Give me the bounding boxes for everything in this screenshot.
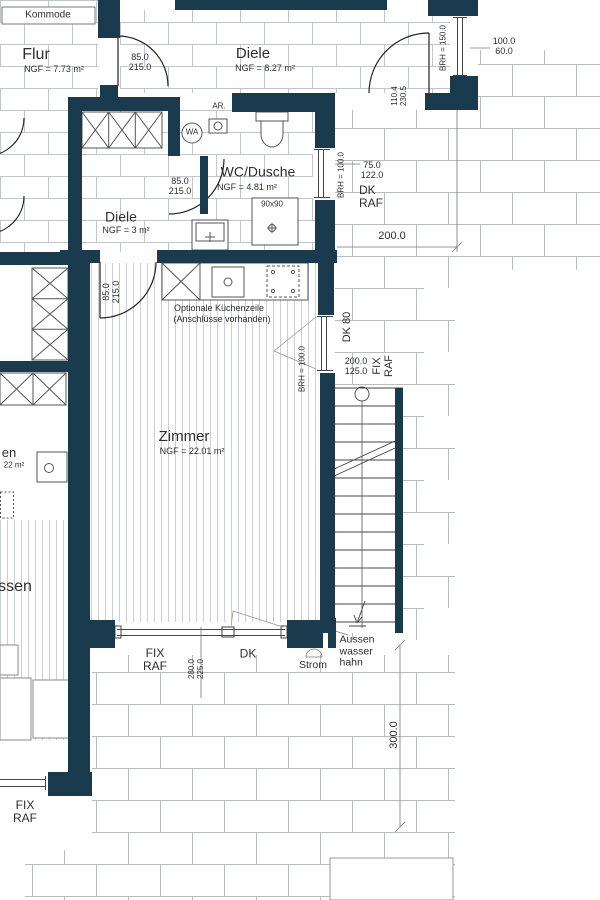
neighbor-room-fragment-ssen: ssen [0, 578, 32, 596]
dim-window-zimmer-east: 200.0125.0 [345, 357, 368, 377]
kitchen-counter [162, 263, 308, 300]
room-name-diele-top: Diele [236, 46, 270, 63]
window-wc-type: DKRAF [359, 184, 383, 210]
wardrobe-diele [82, 112, 162, 148]
dim-entrance-door: 110.4230.5 [391, 86, 409, 106]
drain-outlet-icon [209, 119, 227, 133]
stair-door-label: DK 80 [341, 312, 353, 343]
drain-outlet-label: AR. [212, 103, 225, 112]
dim-door-diele-small: 85.0215.0 [169, 177, 192, 197]
dim-brh-wc: BRH = 100.0 [338, 152, 347, 198]
stove-neighbor [37, 452, 67, 482]
floor-plan: Kommode Flur NGF = 7.73 m² Diele NGF = 8… [0, 0, 600, 900]
neighbor-room-fragment-en: en [2, 446, 16, 460]
room-area-flur: NGF = 7.73 m² [24, 65, 84, 75]
dim-terrace-width: 200.0 [378, 230, 406, 242]
floor-plan-drawing [0, 0, 600, 900]
room-name-zimmer: Zimmer [159, 429, 210, 446]
shower-size-label: 90x90 [261, 201, 283, 210]
dim-window-wc: 75.0122.0 [361, 161, 384, 181]
window-neighbor-type: FIXRAF [13, 799, 37, 825]
room-area-diele-top: NGF = 8.27 m² [235, 64, 295, 74]
dim-door-zimmer: 85.0215.0 [102, 281, 122, 304]
room-name-diele-small: Diele [105, 209, 137, 224]
exterior-stairs [332, 385, 403, 633]
dim-window-top-right: 100.060.0 [493, 37, 516, 57]
dim-brh-top-right: BRH = 150.0 [440, 25, 449, 71]
wardrobe-neighbor-horizontal [0, 373, 66, 405]
window-zimmer-south-dk: DK [240, 647, 257, 660]
sink-icon [192, 220, 228, 250]
window-top-right [452, 16, 468, 78]
window-wc [313, 148, 331, 200]
wardrobe-neighbor-vertical [32, 268, 68, 360]
washing-machine-label: WA [186, 129, 199, 138]
window-zimmer-east [316, 315, 334, 373]
window-neighbor-south [0, 773, 48, 795]
dim-brh-zimmer-east: BRH = 100.0 [299, 346, 308, 392]
room-name-flur: Flur [22, 46, 50, 64]
dashed-fixture [1, 492, 14, 518]
kitchen-note-2: (Anschlüsse vorhanden) [173, 315, 270, 325]
dim-window-zimmer-south: 280.0225.0 [188, 659, 206, 679]
aussenwasserhahn-label: Aussen wasser hahn [339, 635, 374, 670]
room-area-zimmer: NGF = 22.01 m² [160, 447, 225, 457]
paving-slab [330, 858, 453, 900]
room-area-diele-small: NGF = 3 m² [102, 226, 149, 236]
window-zimmer-east-type: FIXRAF [371, 355, 395, 377]
dim-door-flur: 85.0215.0 [129, 53, 152, 73]
window-zimmer-south-fix: FIXRAF [143, 647, 167, 673]
room-name-wc: WC/Dusche [221, 164, 296, 179]
dim-terrace-height: 300.0 [388, 721, 400, 749]
strom-label: Strom [299, 660, 327, 672]
kitchen-note-1: Optionale Küchenzeile [174, 304, 264, 314]
kommode-label: Kommode [25, 10, 71, 21]
neighbor-area-fragment: 22 m² [4, 462, 24, 471]
room-area-wc: NGF = 4.81 m² [217, 183, 277, 193]
